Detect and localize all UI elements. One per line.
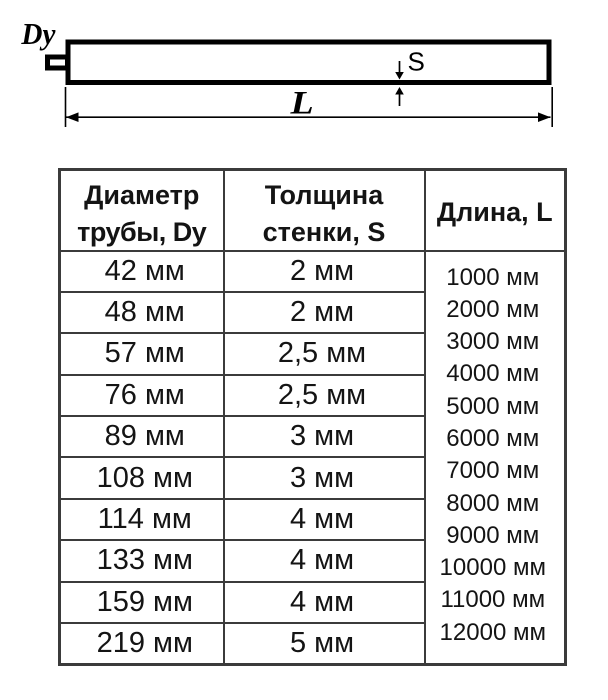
svg-text:Dy: Dy xyxy=(20,16,56,51)
svg-text:L: L xyxy=(289,84,313,121)
svg-text:S: S xyxy=(408,47,425,77)
